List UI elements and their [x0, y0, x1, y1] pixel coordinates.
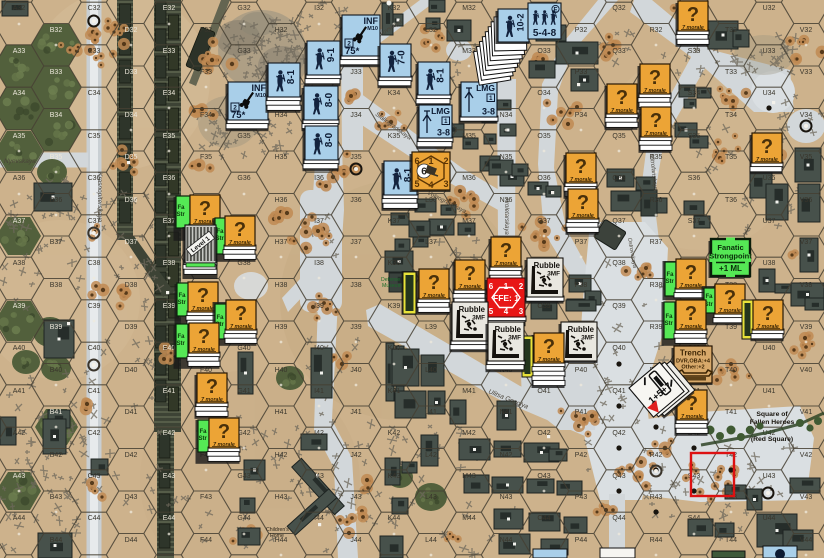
svg-text:1: 1	[504, 282, 509, 291]
svg-text:S37: S37	[688, 218, 701, 225]
svg-text:Fa: Fa	[178, 205, 186, 211]
svg-text:L32: L32	[425, 27, 437, 34]
svg-text:7 morale: 7 morale	[756, 157, 778, 163]
svg-text:C41: C41	[88, 388, 101, 395]
svg-text:3: 3	[519, 307, 524, 316]
svg-text:T32: T32	[725, 27, 737, 34]
svg-text:L42: L42	[425, 452, 437, 459]
svg-text:J34: J34	[350, 112, 361, 119]
svg-text:M10: M10	[367, 26, 378, 32]
svg-text:B34: B34	[50, 112, 63, 119]
svg-text:?: ?	[762, 303, 774, 325]
svg-text:H42: H42	[275, 452, 288, 459]
svg-text:5: 5	[489, 307, 494, 316]
svg-text:C43: C43	[88, 473, 101, 480]
svg-text:?: ?	[543, 336, 555, 358]
svg-text:A32: A32	[13, 5, 26, 12]
svg-text:Q43: Q43	[612, 473, 625, 480]
svg-text:3MF: 3MF	[472, 315, 485, 322]
svg-text:N34: N34	[500, 112, 513, 119]
svg-text:Rubble: Rubble	[459, 305, 486, 314]
svg-text:O42: O42	[537, 430, 550, 437]
svg-text:A39: A39	[13, 303, 26, 310]
svg-text:U40: U40	[763, 345, 776, 352]
svg-text:D40: D40	[125, 367, 138, 374]
svg-text:Q41: Q41	[612, 388, 625, 395]
svg-text:D41: D41	[125, 409, 138, 416]
svg-text:Q36: Q36	[612, 175, 625, 182]
svg-text:A43: A43	[13, 473, 26, 480]
svg-text:INF: INF	[252, 83, 267, 93]
svg-text:7 morale: 7 morale	[230, 324, 252, 330]
svg-text:I32: I32	[314, 5, 324, 12]
svg-text:C44: C44	[88, 515, 101, 522]
svg-text:V40: V40	[800, 367, 813, 374]
svg-text:9-1: 9-1	[326, 47, 337, 62]
svg-text:Proletarskaya: Proletarskaya	[503, 198, 509, 235]
svg-text:N44: N44	[500, 537, 513, 544]
svg-text:Str: Str	[666, 279, 675, 285]
svg-text:1: 1	[428, 156, 433, 166]
svg-text:E38: E38	[163, 260, 176, 267]
svg-text:T35: T35	[725, 154, 737, 161]
svg-text:U33: U33	[763, 48, 776, 55]
svg-text:V32: V32	[800, 27, 813, 34]
svg-text:E32: E32	[163, 5, 176, 12]
svg-text:A42: A42	[13, 430, 26, 437]
svg-text:S36: S36	[688, 175, 701, 182]
svg-text:U36: U36	[763, 175, 776, 182]
svg-text:(Red Square): (Red Square)	[751, 436, 793, 443]
svg-text:3MF: 3MF	[581, 335, 594, 342]
svg-text:B37: B37	[50, 239, 63, 246]
svg-text:10-2: 10-2	[516, 13, 526, 31]
svg-text:7 morale: 7 morale	[757, 324, 779, 330]
svg-text:K42: K42	[388, 430, 401, 437]
svg-text:B35: B35	[50, 154, 63, 161]
svg-text:E: E	[553, 7, 557, 13]
svg-text:G41: G41	[237, 388, 250, 395]
svg-text:?: ?	[234, 219, 246, 241]
svg-text:P38: P38	[575, 282, 588, 289]
svg-text:J38: J38	[350, 282, 361, 289]
svg-text:?: ?	[197, 285, 209, 307]
svg-text:?: ?	[761, 136, 773, 158]
svg-text:7 morale: 7 morale	[192, 306, 214, 312]
svg-text:Nyevskaya: Nyevskaya	[4, 158, 36, 165]
svg-text:L44: L44	[425, 537, 437, 544]
svg-text:Museum: Museum	[382, 283, 402, 289]
svg-text:?: ?	[575, 156, 587, 178]
svg-text:N43: N43	[500, 494, 513, 501]
svg-text:Q33: Q33	[612, 48, 625, 55]
svg-text:V35: V35	[800, 154, 813, 161]
svg-text:?: ?	[206, 376, 218, 398]
svg-text:J42: J42	[350, 452, 361, 459]
svg-text:V39: V39	[800, 324, 813, 331]
svg-text:O44: O44	[537, 515, 550, 522]
svg-text:+1 ML: +1 ML	[719, 264, 742, 273]
svg-text:3-8: 3-8	[437, 128, 450, 138]
svg-text:M32: M32	[462, 5, 476, 12]
svg-text:U44: U44	[763, 515, 776, 522]
svg-text:H41: H41	[275, 409, 288, 416]
svg-text:D37: D37	[125, 239, 138, 246]
svg-text:7 morale: 7 morale	[201, 397, 223, 403]
svg-text:K38: K38	[388, 260, 401, 267]
svg-text:D35: D35	[125, 154, 138, 161]
svg-text:D33: D33	[125, 69, 138, 76]
svg-text:3-8: 3-8	[482, 107, 495, 117]
svg-text:M41: M41	[462, 388, 476, 395]
svg-text:8-0: 8-0	[324, 92, 335, 107]
svg-text:?: ?	[199, 198, 211, 220]
svg-text:A37: A37	[13, 218, 26, 225]
svg-text:Fa: Fa	[179, 293, 187, 299]
svg-text:D44: D44	[125, 537, 138, 544]
svg-text:H43: H43	[275, 494, 288, 501]
svg-text:M35: M35	[462, 133, 476, 140]
svg-text:G33: G33	[237, 48, 250, 55]
svg-text:?: ?	[464, 263, 476, 285]
svg-text:L41: L41	[425, 409, 437, 416]
svg-text:7 morale: 7 morale	[611, 108, 633, 114]
svg-text:M44: M44	[462, 515, 476, 522]
svg-text:O35: O35	[537, 133, 550, 140]
svg-text:M36: M36	[462, 175, 476, 182]
svg-text:?: ?	[218, 421, 230, 443]
svg-text:S33: S33	[688, 48, 701, 55]
svg-text:J41: J41	[350, 409, 361, 416]
svg-text:S44: S44	[688, 515, 701, 522]
svg-text:R43: R43	[650, 494, 663, 501]
svg-text:I40: I40	[314, 345, 324, 352]
svg-text:Str: Str	[177, 212, 186, 218]
svg-text:FFE: 1: FFE: 1	[493, 293, 519, 303]
svg-text:I43: I43	[314, 473, 324, 480]
svg-text:7 morale: 7 morale	[682, 25, 704, 31]
svg-text:S43: S43	[688, 473, 701, 480]
svg-text:Q42: Q42	[612, 430, 625, 437]
svg-text:J35: J35	[350, 154, 361, 161]
svg-text:Fa: Fa	[666, 314, 674, 320]
svg-text:O39: O39	[537, 303, 550, 310]
svg-text:Fa: Fa	[217, 229, 225, 235]
svg-text:V37: V37	[800, 239, 813, 246]
svg-text:A44: A44	[13, 515, 26, 522]
svg-text:Other:+2: Other:+2	[681, 365, 704, 371]
svg-text:7-0: 7-0	[397, 50, 408, 65]
svg-text:K44: K44	[388, 515, 401, 522]
svg-text:Square of: Square of	[756, 411, 788, 418]
svg-text:75*: 75*	[231, 110, 246, 121]
svg-text:P34: P34	[575, 112, 588, 119]
svg-text:G43: G43	[237, 473, 250, 480]
svg-text:E44: E44	[163, 515, 176, 522]
svg-text:D38: D38	[125, 282, 138, 289]
svg-text:O37: O37	[537, 218, 550, 225]
svg-text:H39: H39	[275, 324, 288, 331]
svg-text:P37: P37	[575, 239, 588, 246]
svg-text:Krasnopiterskaya: Krasnopiterskaya	[96, 172, 103, 223]
svg-text:B41: B41	[50, 409, 63, 416]
svg-text:A40: A40	[13, 345, 26, 352]
svg-text:C40: C40	[88, 345, 101, 352]
svg-text:4: 4	[428, 180, 433, 190]
svg-text:Fa: Fa	[667, 272, 675, 278]
svg-text:P44: P44	[575, 537, 588, 544]
svg-text:E37: E37	[163, 218, 176, 225]
svg-text:Q37: Q37	[612, 218, 625, 225]
svg-text:U41: U41	[763, 388, 776, 395]
svg-text:I41: I41	[314, 388, 324, 395]
svg-text:T40: T40	[725, 367, 737, 374]
svg-text:U32: U32	[763, 5, 776, 12]
svg-text:8-1: 8-1	[286, 69, 297, 84]
svg-text:V41: V41	[800, 409, 813, 416]
svg-text:7 morale: 7 morale	[680, 283, 702, 289]
svg-text:R32: R32	[650, 27, 663, 34]
svg-text:D32: D32	[125, 27, 138, 34]
svg-text:J33: J33	[350, 69, 361, 76]
svg-text:?: ?	[500, 240, 512, 262]
svg-text:U38: U38	[763, 260, 776, 267]
svg-text:8-0: 8-0	[324, 132, 335, 147]
svg-text:Strongpoint: Strongpoint	[709, 252, 752, 261]
svg-text:B36: B36	[50, 197, 63, 204]
svg-text:7 morale: 7 morale	[572, 213, 594, 219]
svg-text:R42: R42	[650, 452, 663, 459]
svg-text:K39: K39	[388, 303, 401, 310]
svg-text:C42: C42	[88, 430, 101, 437]
svg-text:3MF: 3MF	[508, 335, 521, 342]
svg-text:Fa: Fa	[200, 429, 208, 435]
svg-text:7 morale: 7 morale	[681, 414, 703, 420]
svg-text:H38: H38	[275, 282, 288, 289]
svg-text:Str: Str	[177, 341, 186, 347]
svg-text:I42: I42	[314, 430, 324, 437]
svg-text:M37: M37	[462, 218, 476, 225]
svg-text:A35: A35	[13, 133, 26, 140]
svg-text:?: ?	[685, 262, 697, 284]
svg-text:B40: B40	[50, 367, 63, 374]
svg-text:7 morale: 7 morale	[570, 177, 592, 183]
svg-text:T41: T41	[725, 409, 737, 416]
svg-text:7 morale: 7 morale	[645, 131, 667, 137]
svg-text:K34: K34	[388, 90, 401, 97]
svg-text:A41: A41	[13, 388, 26, 395]
svg-text:7 morale: 7 morale	[459, 284, 481, 290]
svg-text:D36: D36	[125, 197, 138, 204]
svg-text:5: 5	[414, 179, 419, 189]
svg-text:Str: Str	[199, 436, 208, 442]
svg-text:Trench: Trench	[680, 349, 706, 358]
svg-text:T44: T44	[725, 537, 737, 544]
svg-text:T33: T33	[725, 69, 737, 76]
svg-text:V43: V43	[800, 494, 813, 501]
svg-text:7 morale: 7 morale	[719, 308, 741, 314]
svg-text:E43: E43	[163, 473, 176, 480]
svg-text:J44: J44	[350, 537, 361, 544]
svg-text:INF: INF	[364, 16, 379, 26]
svg-text:T36: T36	[725, 197, 737, 204]
svg-text:F33: F33	[200, 69, 212, 76]
svg-text:A38: A38	[13, 260, 26, 267]
svg-text:H36: H36	[275, 197, 288, 204]
svg-text:Q38: Q38	[612, 260, 625, 267]
svg-text:7 morale: 7 morale	[229, 240, 251, 246]
svg-text:?: ?	[724, 287, 736, 309]
svg-text:M43: M43	[462, 473, 476, 480]
svg-text:7 morale: 7 morale	[680, 324, 702, 330]
svg-text:U37: U37	[763, 218, 776, 225]
svg-text:K41: K41	[388, 388, 401, 395]
svg-text:H35: H35	[275, 154, 288, 161]
svg-text:L40: L40	[425, 367, 437, 374]
svg-text:B33: B33	[50, 69, 63, 76]
svg-text:M10: M10	[255, 93, 266, 99]
svg-text:V33: V33	[800, 69, 813, 76]
svg-text:F35: F35	[200, 154, 212, 161]
svg-text:F44: F44	[200, 537, 212, 544]
svg-text:P41: P41	[575, 409, 588, 416]
svg-text:B39: B39	[50, 324, 63, 331]
svg-text:J43: J43	[350, 494, 361, 501]
svg-text:A34: A34	[13, 90, 26, 97]
svg-text:P42: P42	[575, 452, 588, 459]
svg-text:I39: I39	[314, 303, 324, 310]
svg-text:P32: P32	[575, 27, 588, 34]
svg-text:O36: O36	[537, 175, 550, 182]
svg-text:E34: E34	[163, 90, 176, 97]
svg-text:R37: R37	[650, 239, 663, 246]
svg-text:N41: N41	[500, 409, 513, 416]
svg-text:B42: B42	[50, 452, 63, 459]
svg-text:P33: P33	[575, 69, 588, 76]
svg-text:B38: B38	[50, 282, 63, 289]
svg-text:G35: G35	[237, 133, 250, 140]
svg-text:3: 3	[443, 179, 448, 189]
svg-text:Fa: Fa	[217, 315, 225, 321]
svg-text:S35: S35	[688, 133, 701, 140]
svg-text:M42: M42	[462, 430, 476, 437]
svg-text:P43: P43	[575, 494, 588, 501]
svg-text:6: 6	[414, 156, 419, 166]
svg-text:E39: E39	[163, 303, 176, 310]
svg-text:7 morale: 7 morale	[193, 347, 215, 353]
svg-text:E40: E40	[163, 345, 176, 352]
svg-text:C35: C35	[88, 133, 101, 140]
svg-text:Q40: Q40	[612, 345, 625, 352]
svg-text:T34: T34	[725, 112, 737, 119]
svg-text:Q44: Q44	[612, 515, 625, 522]
svg-text:Rubble: Rubble	[534, 261, 561, 270]
svg-text:F43: F43	[200, 494, 212, 501]
svg-text:O33: O33	[537, 48, 550, 55]
svg-text:R39: R39	[650, 324, 663, 331]
svg-text:V38: V38	[800, 282, 813, 289]
svg-text:3MF: 3MF	[547, 271, 560, 278]
svg-text:K37: K37	[388, 218, 401, 225]
svg-text:K43: K43	[388, 473, 401, 480]
svg-text:E36: E36	[163, 175, 176, 182]
svg-text:C34: C34	[88, 90, 101, 97]
svg-text:E33: E33	[163, 48, 176, 55]
svg-text:E35: E35	[163, 133, 176, 140]
svg-text:U43: U43	[763, 473, 776, 480]
svg-text:?: ?	[235, 303, 247, 325]
svg-text:V34: V34	[800, 112, 813, 119]
svg-text:L39: L39	[425, 324, 437, 331]
svg-text:Q32: Q32	[612, 5, 625, 12]
svg-text:C33: C33	[88, 48, 101, 55]
svg-text:7 morale: 7 morale	[213, 442, 235, 448]
svg-text:S34: S34	[688, 90, 701, 97]
svg-text:I37: I37	[314, 218, 324, 225]
svg-text:D42: D42	[125, 452, 138, 459]
svg-text:Fallen Heroes: Fallen Heroes	[750, 419, 795, 426]
svg-text:L37: L37	[425, 239, 437, 246]
svg-text:Q39: Q39	[612, 303, 625, 310]
svg-text:D39: D39	[125, 324, 138, 331]
svg-text:I44: I44	[314, 515, 324, 522]
svg-text:I36: I36	[314, 175, 324, 182]
svg-text:G40: G40	[237, 345, 250, 352]
svg-text:B32: B32	[50, 27, 63, 34]
svg-text:H34: H34	[275, 112, 288, 119]
svg-text:7 morale: 7 morale	[644, 88, 666, 94]
svg-text:C39: C39	[88, 303, 101, 310]
svg-text:?: ?	[577, 192, 589, 214]
svg-text:J36: J36	[350, 197, 361, 204]
svg-text:O34: O34	[537, 90, 550, 97]
svg-text:V42: V42	[800, 452, 813, 459]
svg-text:8-1: 8-1	[436, 68, 447, 83]
svg-text:H37: H37	[275, 239, 288, 246]
svg-text:J37: J37	[350, 239, 361, 246]
svg-text:A36: A36	[13, 175, 26, 182]
svg-text:D34: D34	[125, 112, 138, 119]
svg-text:C32: C32	[88, 5, 101, 12]
svg-text:G44: G44	[237, 515, 250, 522]
svg-text:LMG: LMG	[431, 106, 450, 116]
svg-text:4: 4	[504, 307, 509, 316]
svg-text:Q35: Q35	[612, 133, 625, 140]
svg-text:G36: G36	[237, 175, 250, 182]
svg-text:?: ?	[650, 110, 662, 132]
svg-text:N42: N42	[500, 452, 513, 459]
svg-text:B44: B44	[50, 537, 63, 544]
svg-text:Rubble: Rubble	[495, 325, 522, 334]
svg-text:U34: U34	[763, 90, 776, 97]
svg-text:7 morale: 7 morale	[495, 261, 517, 267]
svg-text:?: ?	[687, 4, 699, 26]
svg-text:E41: E41	[163, 388, 176, 395]
svg-text:E42: E42	[163, 430, 176, 437]
svg-text:L43: L43	[425, 494, 437, 501]
svg-text:F34: F34	[200, 112, 212, 119]
svg-text:75*: 75*	[345, 46, 360, 57]
svg-text:V44: V44	[800, 537, 813, 544]
svg-text:R44: R44	[650, 537, 663, 544]
svg-text:6: 6	[489, 282, 494, 291]
svg-text:O43: O43	[537, 473, 550, 480]
svg-text:J39: J39	[350, 324, 361, 331]
svg-text:Fa: Fa	[706, 294, 714, 300]
svg-text:N35: N35	[500, 154, 513, 161]
svg-text:R38: R38	[650, 282, 663, 289]
svg-text:K32: K32	[388, 5, 401, 12]
